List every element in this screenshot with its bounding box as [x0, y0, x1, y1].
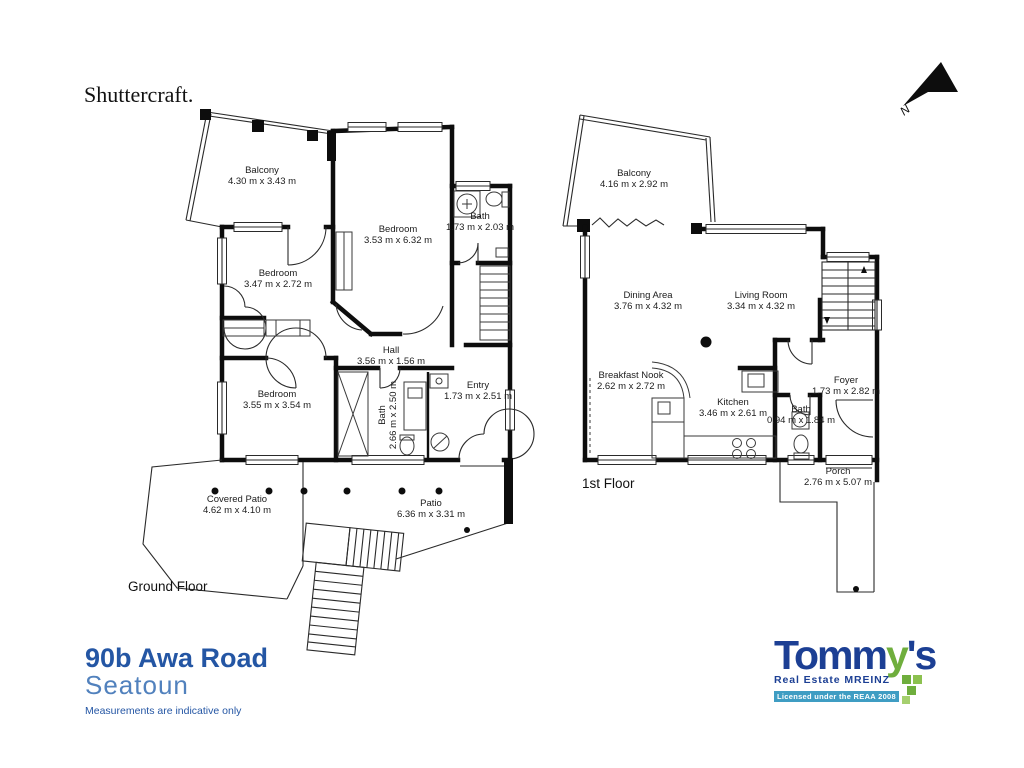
room-label-foyer: Foyer1.73 m x 2.82 m: [812, 375, 880, 397]
north-arrow-icon: N: [897, 62, 958, 118]
room-label-balcony-first: Balcony4.16 m x 2.92 m: [600, 168, 668, 190]
room-label-covered-patio: Covered Patio4.62 m x 4.10 m: [203, 494, 271, 516]
room-label-entry: Entry1.73 m x 2.51 m: [444, 380, 512, 402]
room-label-breakfast-nook: Breakfast Nook2.62 m x 2.72 m: [597, 370, 665, 392]
room-label-bath-lower: Bath2.66 m x 2.50 m: [377, 381, 399, 449]
agency-tagline: Real Estate MREINZ: [774, 674, 899, 686]
logo-text-green: y: [886, 632, 907, 678]
room-label-living-room: Living Room3.34 m x 4.32 m: [727, 290, 795, 312]
room-label-hall: Hall3.56 m x 1.56 m: [357, 345, 425, 367]
room-label-bath-first: Bath0.94 m x 1.84 m: [767, 404, 835, 426]
room-label-bedroom-2: Bedroom3.47 m x 2.72 m: [244, 268, 312, 290]
room-label-bedroom-1: Bedroom3.53 m x 6.32 m: [364, 224, 432, 246]
room-label-kitchen: Kitchen3.46 m x 2.61 m: [699, 397, 767, 419]
first-floor-label: 1st Floor: [582, 476, 635, 491]
address-block: 90b Awa Road Seatoun Measurements are in…: [85, 644, 268, 717]
room-label-patio: Patio6.36 m x 3.31 m: [397, 498, 465, 520]
agency-license: Licensed under the REAA 2008: [774, 691, 899, 702]
ground-stairs-down: [293, 523, 404, 659]
address-line2: Seatoun: [85, 672, 268, 699]
room-label-porch: Porch2.76 m x 5.07 m: [804, 466, 872, 488]
room-label-bedroom-3: Bedroom3.55 m x 3.54 m: [243, 389, 311, 411]
room-label-bath-upper: Bath1.73 m x 2.03 m: [446, 211, 514, 233]
first-windows: [581, 225, 882, 469]
ground-floor-label: Ground Floor: [128, 579, 208, 594]
room-label-balcony-ground: Balcony4.30 m x 3.43 m: [228, 165, 296, 187]
ground-patio-outline: [143, 458, 513, 599]
north-arrow-label: N: [897, 102, 913, 119]
logo-text-blue: Tomm: [774, 632, 886, 678]
logo-pixel-icon: [902, 674, 928, 706]
first-stairwell: [822, 262, 875, 330]
address-line1: 90b Awa Road: [85, 644, 268, 672]
room-label-dining-area: Dining Area3.76 m x 4.32 m: [614, 290, 682, 312]
agency-logo-wordmark: Tommy's: [774, 636, 949, 674]
disclaimer-text: Measurements are indicative only: [85, 705, 268, 717]
logo-text-apostrophe: 's: [907, 632, 936, 678]
floorplan-page: Shuttercraft.: [0, 0, 1024, 768]
agency-logo: Tommy's Real Estate MREINZ Licensed unde…: [774, 636, 949, 706]
